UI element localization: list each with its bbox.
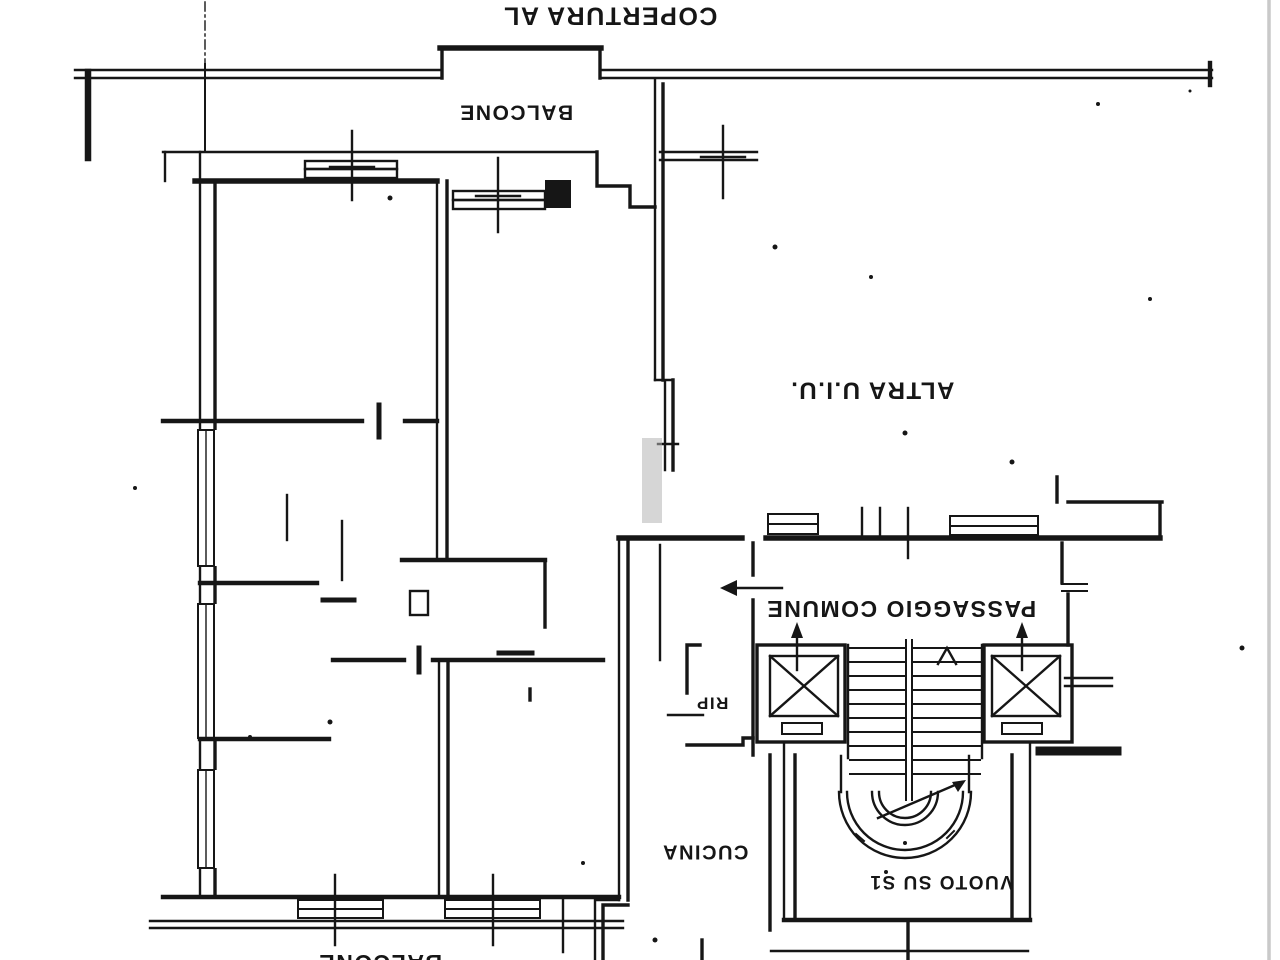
label-balcone-bottom: BALCONE (318, 950, 442, 960)
left-apartment-exterior-walls (163, 152, 655, 897)
floor-plan-scan: COPERTURA AL BALCONE ALTRA U.I.U. PASSAG… (0, 0, 1280, 960)
wall-pier (545, 180, 571, 208)
label-vuoto-su-s1: VUOTO SU S1 (869, 871, 1013, 892)
survey-crosses (330, 126, 908, 558)
bottom-balcony (150, 875, 623, 952)
staircase (839, 640, 982, 858)
top-parapet (75, 48, 1212, 85)
interior-partitions (163, 181, 603, 897)
altra-boundary-wall (642, 80, 757, 660)
label-copertura: COPERTURA AL (503, 1, 718, 29)
scan-smudge (642, 438, 662, 523)
elevator-right (984, 622, 1072, 742)
label-rip: RIP (696, 694, 729, 713)
floor-plan-drawing: COPERTURA AL BALCONE ALTRA U.I.U. PASSAG… (0, 0, 1280, 960)
kitchen-walls (595, 538, 770, 960)
label-passaggio-comune: PASSAGGIO COMUNE (766, 596, 1036, 622)
reference-lines (88, 2, 205, 181)
label-balcone-top: BALCONE (459, 100, 573, 123)
elevator-left (757, 622, 845, 742)
scan-specks (133, 90, 1245, 943)
label-altra-uiu: ALTRA U.I.U. (790, 377, 955, 404)
window-left-2 (194, 604, 220, 738)
window-left-1 (194, 430, 220, 566)
label-cucina: CUCINA (662, 841, 749, 863)
window-left-3 (194, 770, 220, 868)
exit-arrow-head (720, 580, 737, 596)
